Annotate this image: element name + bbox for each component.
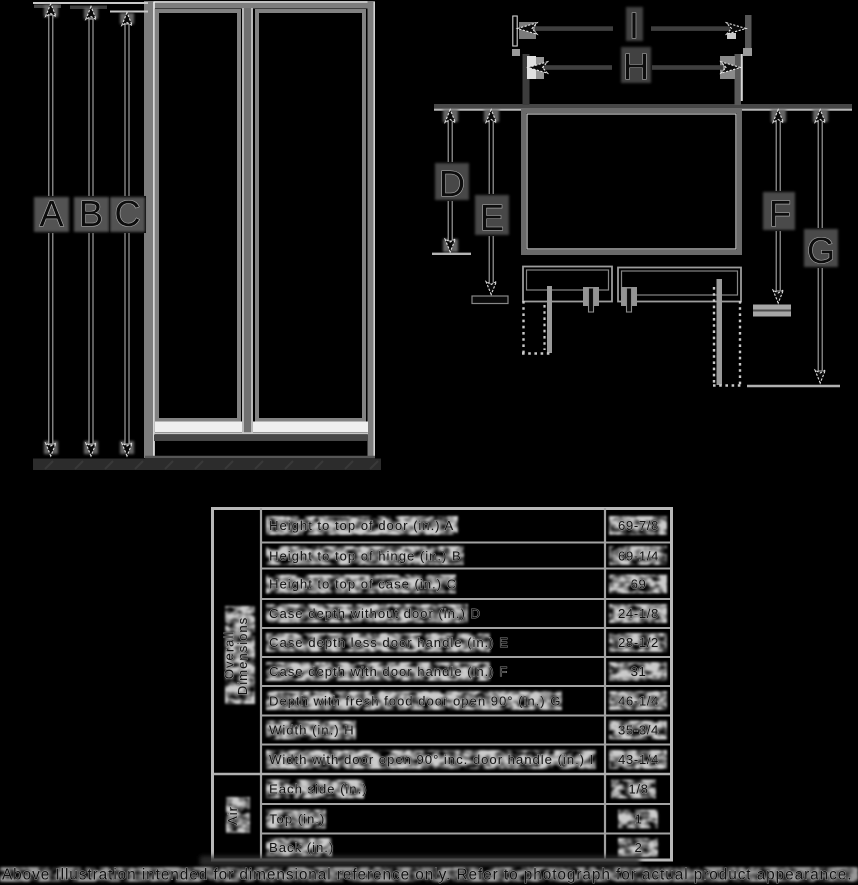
svg-text:B: B	[79, 193, 103, 234]
svg-text:E: E	[480, 197, 504, 238]
svg-text:Back (in.): Back (in.)	[269, 840, 334, 855]
svg-text:Case depth without door (in.): Case depth without door (in.) D	[269, 606, 481, 621]
svg-text:Height to top of door (in.) A: Height to top of door (in.) A	[269, 518, 454, 533]
svg-text:43-1/4: 43-1/4	[618, 752, 659, 767]
svg-text:I: I	[629, 5, 639, 46]
svg-text:Depth with fresh food door ope: Depth with fresh food door open 90° (in.…	[269, 693, 561, 708]
svg-text:46-1/4: 46-1/4	[618, 693, 659, 708]
svg-text:35-3/4: 35-3/4	[618, 723, 659, 738]
svg-text:69-1/4: 69-1/4	[618, 548, 659, 563]
svg-text:Each side (in.): Each side (in.)	[269, 782, 368, 797]
svg-text:1/8: 1/8	[628, 782, 648, 797]
svg-text:A: A	[39, 193, 63, 234]
svg-text:24-1/8: 24-1/8	[618, 606, 659, 621]
svg-text:G: G	[807, 230, 835, 271]
svg-text:Top (in.): Top (in.)	[269, 811, 325, 826]
svg-text:Air: Air	[225, 806, 240, 825]
svg-text:Height to top of hinge (in.) B: Height to top of hinge (in.) B	[269, 548, 462, 563]
svg-text:Case depth with door handle (i: Case depth with door handle (in.) F	[269, 664, 508, 679]
svg-text:Height to top of case (in.) C: Height to top of case (in.) C	[269, 576, 457, 591]
svg-text:Case depth less door handle (i: Case depth less door handle (in.) E	[269, 635, 509, 650]
svg-text:H: H	[623, 46, 649, 87]
svg-text:Above Illustration intended fo: Above Illustration intended for dimensio…	[2, 867, 852, 884]
svg-text:31: 31	[631, 664, 647, 679]
svg-text:69: 69	[631, 576, 647, 591]
svg-text:Width (in.) H: Width (in.) H	[269, 723, 355, 738]
svg-text:2: 2	[635, 840, 643, 855]
svg-text:Width with door open 90° inc.: Width with door open 90° inc. door handl…	[269, 752, 594, 767]
svg-text:1: 1	[635, 811, 643, 826]
svg-text:C: C	[115, 193, 141, 234]
svg-text:Dimensions: Dimensions	[235, 617, 250, 695]
svg-text:28-1/2: 28-1/2	[618, 635, 659, 650]
svg-text:69-7/8: 69-7/8	[618, 518, 659, 533]
svg-text:F: F	[769, 193, 791, 234]
svg-text:D: D	[439, 163, 465, 204]
